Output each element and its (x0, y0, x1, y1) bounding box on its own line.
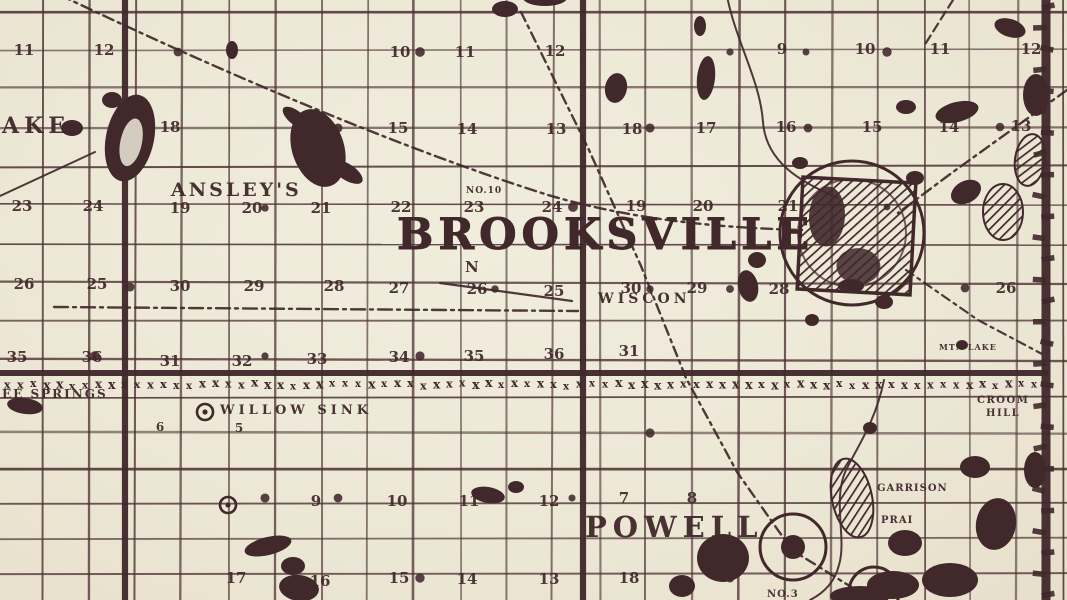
section-number: 36 (544, 345, 565, 363)
section-corner-dot (996, 123, 1005, 132)
label-mtn-lake: MTN LAKE (939, 342, 997, 352)
section-number: 6 (156, 420, 164, 434)
label-garrison: GARRISON (877, 483, 948, 494)
ink-blob (695, 55, 718, 101)
ink-blob (102, 92, 122, 108)
railroad-tie-mark: x (485, 376, 493, 391)
section-number: 13 (539, 570, 560, 588)
railroad-tie-mark: x (537, 376, 545, 390)
section-corner-dot (645, 428, 654, 437)
section-number: 14 (457, 570, 478, 588)
town-circle-dot (781, 535, 805, 559)
railroad-tie-mark: x (264, 378, 272, 393)
section-number: 11 (14, 41, 35, 59)
railroad-tie-mark: x (992, 380, 999, 392)
ink-blob (805, 314, 819, 326)
section-number: 15 (388, 119, 409, 137)
county-line-tick (1033, 361, 1046, 367)
section-number: 34 (389, 348, 410, 366)
railroad-tie-mark: x (459, 377, 466, 390)
label-ee-springs: EE SPRINGS (2, 387, 108, 401)
section-number: 26 (996, 279, 1017, 297)
label-croom: CROOM (977, 395, 1029, 406)
plat-map-canvas: xxxxxxxxxxxxxxxxxxxxxxxxxxxxxxxxxxxxxxxx… (0, 0, 1067, 600)
section-corner-dot (491, 285, 498, 292)
county-line-tick (1041, 508, 1054, 514)
grid-line-v (367, 0, 369, 600)
railroad-line (54, 307, 578, 311)
section-number: 8 (687, 489, 697, 507)
section-number: 13 (546, 120, 567, 138)
railroad-tie-mark: x (888, 377, 895, 391)
railroad-tie-mark: x (862, 377, 870, 392)
railroad-tie-mark: x (173, 379, 180, 392)
section-number: 15 (389, 569, 410, 587)
ink-blob (492, 1, 518, 17)
brooksville-town-square (797, 177, 916, 295)
railroad-tie-mark: x (576, 378, 583, 391)
railroad-tie-mark: x (667, 377, 675, 391)
railroad-tie-mark: x (589, 379, 596, 390)
railroad-tie-mark: x (849, 380, 856, 392)
railroad-tie-mark: x (966, 377, 974, 392)
ink-blob (1024, 452, 1046, 488)
grid-line-v (1016, 0, 1018, 600)
grid-line-h (0, 503, 1067, 504)
railroad-tie-mark: x (680, 377, 687, 391)
section-number: 19 (170, 199, 191, 217)
railroad-tie-mark: x (225, 377, 232, 390)
section-corner-dot (260, 493, 269, 502)
label-ake: AKE (1, 113, 70, 139)
ink-blob (694, 16, 706, 36)
grid-line-v (42, 0, 43, 600)
railroad-tie-mark: x (823, 377, 831, 392)
railroad-tie-mark: x (771, 378, 779, 393)
section-number: 11 (455, 43, 476, 61)
ink-blob (992, 14, 1028, 41)
ink-blob (226, 41, 238, 59)
label-no-3: NO.3 (767, 589, 799, 600)
grid-line-v (180, 0, 182, 600)
railroad-tie-mark: x (147, 377, 154, 391)
label-prai: PRAI (881, 515, 913, 526)
section-corner-dot (803, 49, 810, 56)
ink-blob (669, 575, 695, 597)
railroad-tie-mark: x (784, 379, 791, 391)
plat-map-viewport: xxxxxxxxxxxxxxxxxxxxxxxxxxxxxxxxxxxxxxxx… (0, 0, 1067, 600)
section-number: 26 (467, 280, 488, 298)
section-number: 32 (232, 352, 253, 370)
lakes-and-ink-blobs (6, 0, 1049, 600)
section-number: 31 (619, 342, 640, 360)
railroad-tie-mark: x (745, 378, 753, 393)
section-corner-dot (882, 47, 891, 56)
ink-blob (1023, 74, 1049, 116)
railroad-tie-mark: x (472, 378, 480, 393)
section-number: 36 (82, 348, 103, 366)
railroad-tie-mark: x (901, 378, 909, 392)
grid-line-v (551, 0, 554, 600)
section-corner-dot (568, 494, 575, 501)
railroad-tie-mark: x (719, 377, 727, 391)
railroad-tie-mark: x (602, 379, 609, 391)
railroad-tie-mark: x (511, 376, 519, 390)
railroad-tie-mark: x (940, 379, 947, 391)
section-number: 18 (160, 118, 181, 136)
section-corner-dot (645, 123, 654, 132)
railroad-tie-mark: x (563, 380, 570, 392)
section-number: 16 (310, 572, 331, 590)
label-no-10: NO.10 (466, 186, 502, 196)
grid-line-v (134, 0, 136, 600)
county-line-tick (1033, 277, 1046, 283)
grid-line-h (0, 49, 1067, 50)
section-corner-dot (961, 284, 970, 293)
section-number: 21 (311, 199, 332, 217)
section-number: 27 (389, 279, 410, 297)
railroad-tie-mark: x (446, 377, 453, 391)
county-line-tick (1041, 213, 1054, 220)
hatched-lake (983, 184, 1023, 240)
label-brooksville: BROOKSVILLE (397, 210, 814, 260)
survey-grid (0, 0, 1067, 600)
section-number: 28 (769, 280, 790, 298)
section-number: 10 (390, 43, 411, 61)
section-number: 33 (307, 350, 328, 368)
label-hill: HILL (986, 408, 1020, 419)
railroad-tie-mark: x (407, 376, 414, 390)
railroad-tie-mark: x (277, 378, 285, 392)
ink-blob (888, 530, 922, 556)
sink-symbol-dot (225, 502, 230, 507)
grid-line-h (0, 165, 1067, 167)
county-line-tick (1033, 319, 1046, 325)
grid-line-v (275, 0, 276, 600)
section-corner-dot (726, 574, 735, 583)
railroad-tie-mark: x (758, 377, 765, 391)
railroad-tie-mark: x (797, 376, 805, 391)
railroad-tie-mark: x (251, 375, 259, 390)
section-corner-dot (125, 282, 134, 291)
section-number: 24 (83, 197, 104, 215)
railroad-tie-mark: x (927, 378, 934, 392)
label-ansleys: ANSLEY'S (170, 179, 302, 201)
railroad-tie-mark: x (706, 377, 714, 391)
railroad-tie-mark: x (1005, 376, 1013, 391)
section-number: 7 (619, 489, 629, 507)
ink-blob (863, 422, 877, 434)
section-number: 28 (324, 277, 345, 295)
grid-line-h (0, 397, 1067, 398)
section-number: 16 (776, 118, 797, 136)
railroad-tie-mark: x (810, 378, 818, 392)
label-powell: POWELL (585, 510, 764, 544)
railroad-tie-mark: x (108, 378, 116, 393)
section-corner-dot (333, 123, 342, 132)
section-number: 17 (226, 569, 247, 587)
section-number: 13 (1011, 117, 1032, 135)
railroad-tie-mark: x (979, 377, 987, 391)
section-number: 17 (696, 119, 717, 137)
section-number: 12 (545, 42, 566, 60)
section-number: 10 (855, 40, 876, 58)
township-boundaries: xxxxxxxxxxxxxxxxxxxxxxxxxxxxxxxxxxxxxxxx… (0, 0, 1055, 600)
section-number: 25 (544, 282, 565, 300)
railroad-tie-mark: x (238, 377, 245, 391)
section-corner-dot (804, 124, 813, 133)
section-number: 18 (622, 120, 643, 138)
railroad-tie-mark: x (134, 379, 141, 391)
railroad-tie-mark: x (654, 377, 662, 392)
railroad-tie-mark: x (732, 377, 740, 392)
sink-symbol-dot (202, 409, 207, 414)
section-number: 12 (1021, 40, 1042, 58)
section-number: 26 (14, 275, 35, 293)
railroad-tie-mark: x (1018, 378, 1025, 390)
section-corner-dot (726, 48, 733, 55)
railroad-tie-mark: x (368, 377, 376, 392)
railroad-tie-mark: x (121, 379, 128, 391)
hatched-lake (824, 455, 880, 542)
section-corner-dot (726, 285, 734, 293)
section-number: 30 (170, 277, 191, 295)
railroad-tie-mark: x (329, 378, 336, 390)
county-line-tick (1041, 423, 1054, 430)
railroad-tie-mark: x (433, 377, 441, 392)
railroad-line (0, 152, 95, 196)
railroad-tie-mark: x (290, 381, 297, 392)
railroad-tie-mark: x (693, 377, 700, 391)
section-corner-dot (415, 351, 424, 360)
section-number: 18 (619, 569, 640, 587)
ink-blob (896, 100, 916, 114)
railroad-tie-mark: x (550, 377, 557, 391)
railroad-tie-mark: x (836, 377, 843, 390)
grid-line-v (831, 0, 833, 600)
section-number: 25 (87, 275, 108, 293)
section-number: 9 (311, 492, 321, 510)
railroad-tie-mark: x (160, 377, 167, 391)
section-corner-dot (334, 494, 343, 503)
section-numbers: 1112101112910111218151413181716151413232… (7, 40, 1042, 590)
section-corner-dot (415, 47, 425, 57)
section-corner-dot (415, 573, 424, 582)
section-number: 11 (459, 492, 480, 510)
section-corner-dot (174, 48, 183, 57)
ink-blob (523, 0, 567, 6)
railroad-tie-mark: x (199, 376, 206, 390)
railroad-tie-mark: x (498, 379, 505, 391)
section-number: 15 (862, 118, 883, 136)
section-number: 12 (94, 41, 115, 59)
railroad-tie-mark: x (615, 376, 623, 391)
section-number: 10 (387, 492, 408, 510)
railroad-tie-mark: x (394, 376, 402, 390)
section-number: 5 (235, 421, 243, 435)
section-number: 29 (244, 277, 265, 295)
section-number: 23 (12, 197, 33, 215)
ink-blob (508, 481, 524, 493)
railroad-tie-mark: x (342, 378, 349, 390)
section-number: 12 (539, 492, 560, 510)
railroad-lines (0, 0, 1067, 600)
ink-blob (922, 563, 978, 597)
railroad-tie-mark: x (524, 378, 531, 390)
railroad-tie-mark: x (316, 377, 324, 392)
section-number: 35 (464, 347, 485, 365)
railroad-tie-mark: x (914, 379, 921, 392)
label-north: N (465, 258, 479, 276)
railroad-tie-mark: x (1031, 380, 1038, 391)
railroad-tie-mark: x (641, 376, 649, 391)
label-willow-sink: WILLOW SINK (219, 403, 372, 418)
county-line-tick (1033, 25, 1046, 31)
railroad-tie-mark: x (628, 377, 636, 392)
label-wiscon: WISCON (597, 291, 691, 307)
ink-blob (792, 157, 808, 169)
grid-line-v (969, 0, 970, 600)
section-number: 20 (242, 199, 263, 217)
ink-blob (603, 71, 630, 104)
section-number: 9 (777, 40, 787, 58)
section-number: 14 (939, 118, 960, 136)
section-number: 35 (7, 348, 28, 366)
county-line-tick (1041, 130, 1054, 136)
railroad-tie-mark: x (381, 378, 388, 390)
grid-line-v (89, 0, 90, 600)
ink-blob (281, 557, 305, 575)
railroad-tie-mark: x (420, 378, 427, 392)
ink-blob (243, 531, 294, 560)
section-corner-dot (261, 352, 268, 359)
railroad-tie-mark: x (212, 376, 220, 390)
railroad-tie-mark: x (953, 378, 960, 391)
railroad-tie-mark: x (303, 378, 311, 392)
section-number: 14 (457, 120, 478, 138)
ink-blob (960, 456, 990, 478)
railroad-tie-mark: x (186, 381, 193, 392)
section-number: 11 (930, 40, 951, 58)
section-number: 31 (160, 352, 181, 370)
railroad-tie-mark: x (355, 379, 362, 390)
